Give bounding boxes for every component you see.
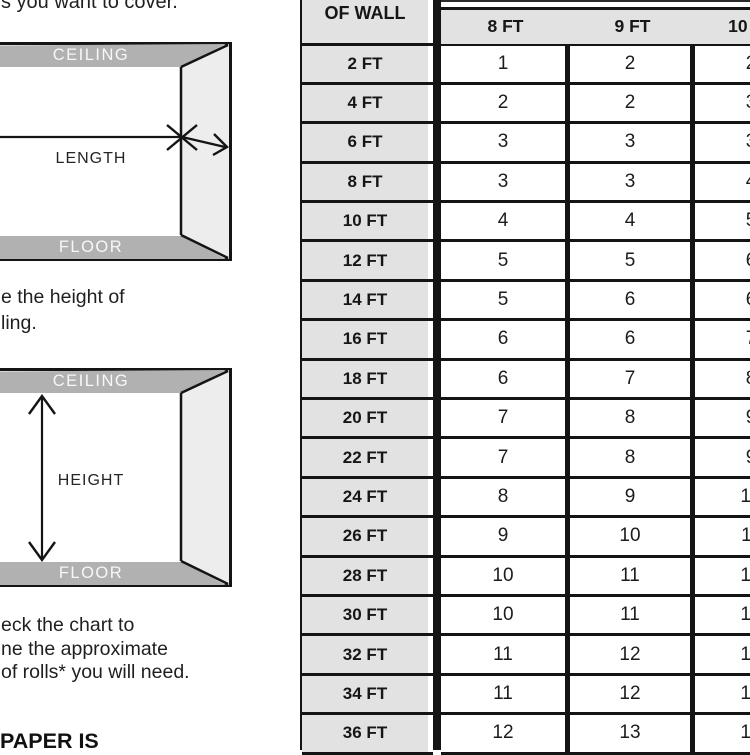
rolls-value: 5	[570, 242, 695, 278]
rolls-value: 3	[570, 124, 695, 160]
rolls-value: 3	[570, 164, 695, 200]
wall-length-row: 20 FT	[302, 400, 433, 439]
rolls-value: 6	[570, 282, 695, 318]
rolls-value: 6	[570, 321, 695, 357]
rolls-row: 101112	[441, 597, 750, 636]
rolls-value: 8	[570, 400, 695, 436]
step3-text: eck the chart to ne the approximate of r…	[1, 614, 190, 685]
rolls-value: 10	[695, 479, 750, 515]
rolls-value: 3	[441, 124, 570, 160]
rolls-value: 9	[695, 400, 750, 436]
rolls-value: 12	[695, 597, 750, 633]
step2-line-2: ling.	[1, 311, 125, 337]
wall-length-label: 26 FT	[343, 526, 387, 546]
rolls-row: 111213	[441, 676, 750, 715]
rolls-row: 122	[441, 46, 750, 85]
rolls-value: 8	[441, 479, 570, 515]
rolls-value: 6	[695, 282, 750, 318]
rolls-row: 667	[441, 321, 750, 360]
rolls-value: 10	[570, 518, 695, 554]
wall-length-label: 2 FT	[348, 54, 383, 74]
wall-length-label: 24 FT	[343, 487, 387, 507]
wall-length-row: 30 FT	[302, 597, 433, 636]
ceiling-height-header: 9 FT	[570, 16, 695, 37]
rolls-value: 14	[695, 715, 750, 751]
wall-length-header-label: OF WALL	[302, 3, 428, 24]
ceiling-label: CEILING	[0, 372, 182, 391]
rolls-row: 556	[441, 242, 750, 281]
rolls-value: 12	[570, 676, 695, 712]
rolls-value: 9	[695, 439, 750, 475]
rolls-table-body: 1222233333344455565666676787897898910910…	[441, 46, 750, 755]
rolls-row: 445	[441, 203, 750, 242]
step3-line-1: eck the chart to	[1, 614, 190, 638]
right-wall	[181, 44, 229, 259]
rolls-row: 91011	[441, 518, 750, 557]
rolls-value: 7	[695, 321, 750, 357]
wall-length-labels: 2 FT4 FT6 FT8 FT10 FT12 FT14 FT16 FT18 F…	[302, 46, 433, 755]
rolls-row: 334	[441, 164, 750, 203]
wall-length-row: 32 FT	[302, 636, 433, 675]
rolls-value: 13	[570, 715, 695, 751]
rolls-row: 8910	[441, 479, 750, 518]
rolls-value: 6	[441, 321, 570, 357]
step3-line-2: ne the approximate	[1, 638, 190, 662]
rolls-value: 2	[695, 46, 750, 82]
ceiling-height-header: 8 FT	[441, 16, 570, 37]
wall-length-row: 26 FT	[302, 518, 433, 557]
rolls-row: 789	[441, 439, 750, 478]
rolls-value: 4	[441, 203, 570, 239]
right-wall	[181, 370, 229, 585]
wall-length-row: 10 FT	[302, 203, 433, 242]
rolls-value: 9	[570, 479, 695, 515]
table-top-strip	[441, 0, 750, 10]
rolls-row: 333	[441, 124, 750, 163]
wall-length-row: 16 FT	[302, 321, 433, 360]
rolls-value: 2	[570, 85, 695, 121]
wall-length-row: 6 FT	[302, 124, 433, 163]
wall-length-label: 22 FT	[343, 448, 387, 468]
rolls-value: 4	[570, 203, 695, 239]
wall-length-row: 28 FT	[302, 558, 433, 597]
height-label: HEIGHT	[0, 472, 182, 490]
rolls-value: 5	[441, 282, 570, 318]
wall-length-row: 18 FT	[302, 361, 433, 400]
rolls-value: 11	[570, 597, 695, 633]
rolls-row: 223	[441, 85, 750, 124]
wall-length-row: 4 FT	[302, 85, 433, 124]
wall-length-label: 18 FT	[343, 369, 387, 389]
intro-text-fragment: s you want to cover.	[1, 0, 178, 14]
rolls-value: 4	[695, 164, 750, 200]
floor-label: FLOOR	[0, 238, 182, 257]
wall-length-label: 30 FT	[343, 605, 387, 625]
rolls-value: 12	[695, 558, 750, 594]
rolls-row: 111213	[441, 636, 750, 675]
rolls-row: 101112	[441, 558, 750, 597]
rolls-value: 3	[695, 85, 750, 121]
ceiling-height-header-row: 8 FT9 FT10 FT	[441, 10, 750, 46]
rolls-row: 121314	[441, 715, 750, 754]
rolls-value: 5	[441, 242, 570, 278]
wall-length-label: 8 FT	[348, 172, 383, 192]
wall-length-label: 16 FT	[343, 329, 387, 349]
length-diagram: CEILING LENGTH FLOOR	[0, 42, 232, 261]
ceiling-label: CEILING	[0, 46, 182, 65]
rolls-value: 8	[570, 439, 695, 475]
rolls-value: 7	[441, 400, 570, 436]
wall-length-label: 14 FT	[343, 290, 387, 310]
wall-length-label: 28 FT	[343, 566, 387, 586]
rolls-value: 2	[441, 85, 570, 121]
rolls-value: 1	[441, 46, 570, 82]
rolls-value: 9	[441, 518, 570, 554]
rolls-value: 6	[695, 242, 750, 278]
wall-length-row: 14 FT	[302, 282, 433, 321]
rolls-table: 8 FT9 FT10 FT 12222333333444555656666767…	[441, 0, 750, 755]
wall-length-row: 12 FT	[302, 242, 433, 281]
wall-length-label: 20 FT	[343, 408, 387, 428]
rolls-row: 566	[441, 282, 750, 321]
rolls-value: 5	[695, 203, 750, 239]
rolls-value: 12	[441, 715, 570, 751]
wall-length-label: 36 FT	[343, 723, 387, 743]
wall-length-label: 4 FT	[348, 93, 383, 113]
rolls-value: 11	[695, 518, 750, 554]
table-divider	[433, 0, 441, 750]
step2-text: e the height of ling.	[1, 285, 125, 336]
ceiling-height-header: 10 FT	[695, 16, 750, 37]
rolls-value: 11	[441, 676, 570, 712]
wall-length-label: 12 FT	[343, 251, 387, 271]
rolls-value: 11	[441, 636, 570, 672]
wall-length-row: 24 FT	[302, 479, 433, 518]
floor-label: FLOOR	[0, 564, 182, 583]
rolls-value: 7	[570, 361, 695, 397]
rolls-value: 13	[695, 636, 750, 672]
wall-length-header-cell: OF WALL	[302, 0, 433, 46]
wall-length-row: 36 FT	[302, 715, 433, 754]
step3-line-3: of rolls* you will need.	[1, 661, 190, 685]
length-label: LENGTH	[0, 150, 182, 168]
rolls-value: 6	[441, 361, 570, 397]
wall-length-column: OF WALL 2 FT4 FT6 FT8 FT10 FT12 FT14 FT1…	[302, 0, 433, 755]
wall-length-row: 8 FT	[302, 164, 433, 203]
rolls-row: 789	[441, 400, 750, 439]
wall-length-label: 6 FT	[348, 132, 383, 152]
rolls-value: 13	[695, 676, 750, 712]
step2-line-1: e the height of	[1, 285, 125, 311]
rolls-value: 8	[695, 361, 750, 397]
wall-length-label: 34 FT	[343, 684, 387, 704]
wall-length-row: 34 FT	[302, 676, 433, 715]
height-diagram: CEILING HEIGHT FLOOR	[0, 368, 232, 587]
rolls-value: 11	[570, 558, 695, 594]
wall-length-label: 32 FT	[343, 645, 387, 665]
rolls-value: 12	[570, 636, 695, 672]
rolls-value: 3	[695, 124, 750, 160]
wall-length-label: 10 FT	[343, 211, 387, 231]
wall-length-row: 2 FT	[302, 46, 433, 85]
rolls-value: 10	[441, 558, 570, 594]
rolls-value: 10	[441, 597, 570, 633]
rolls-value: 3	[441, 164, 570, 200]
wall-length-row: 22 FT	[302, 439, 433, 478]
rolls-value: 7	[441, 439, 570, 475]
rolls-value: 2	[570, 46, 695, 82]
rolls-row: 678	[441, 361, 750, 400]
wallpaper-type-heading: PAPER IS	[0, 729, 99, 754]
